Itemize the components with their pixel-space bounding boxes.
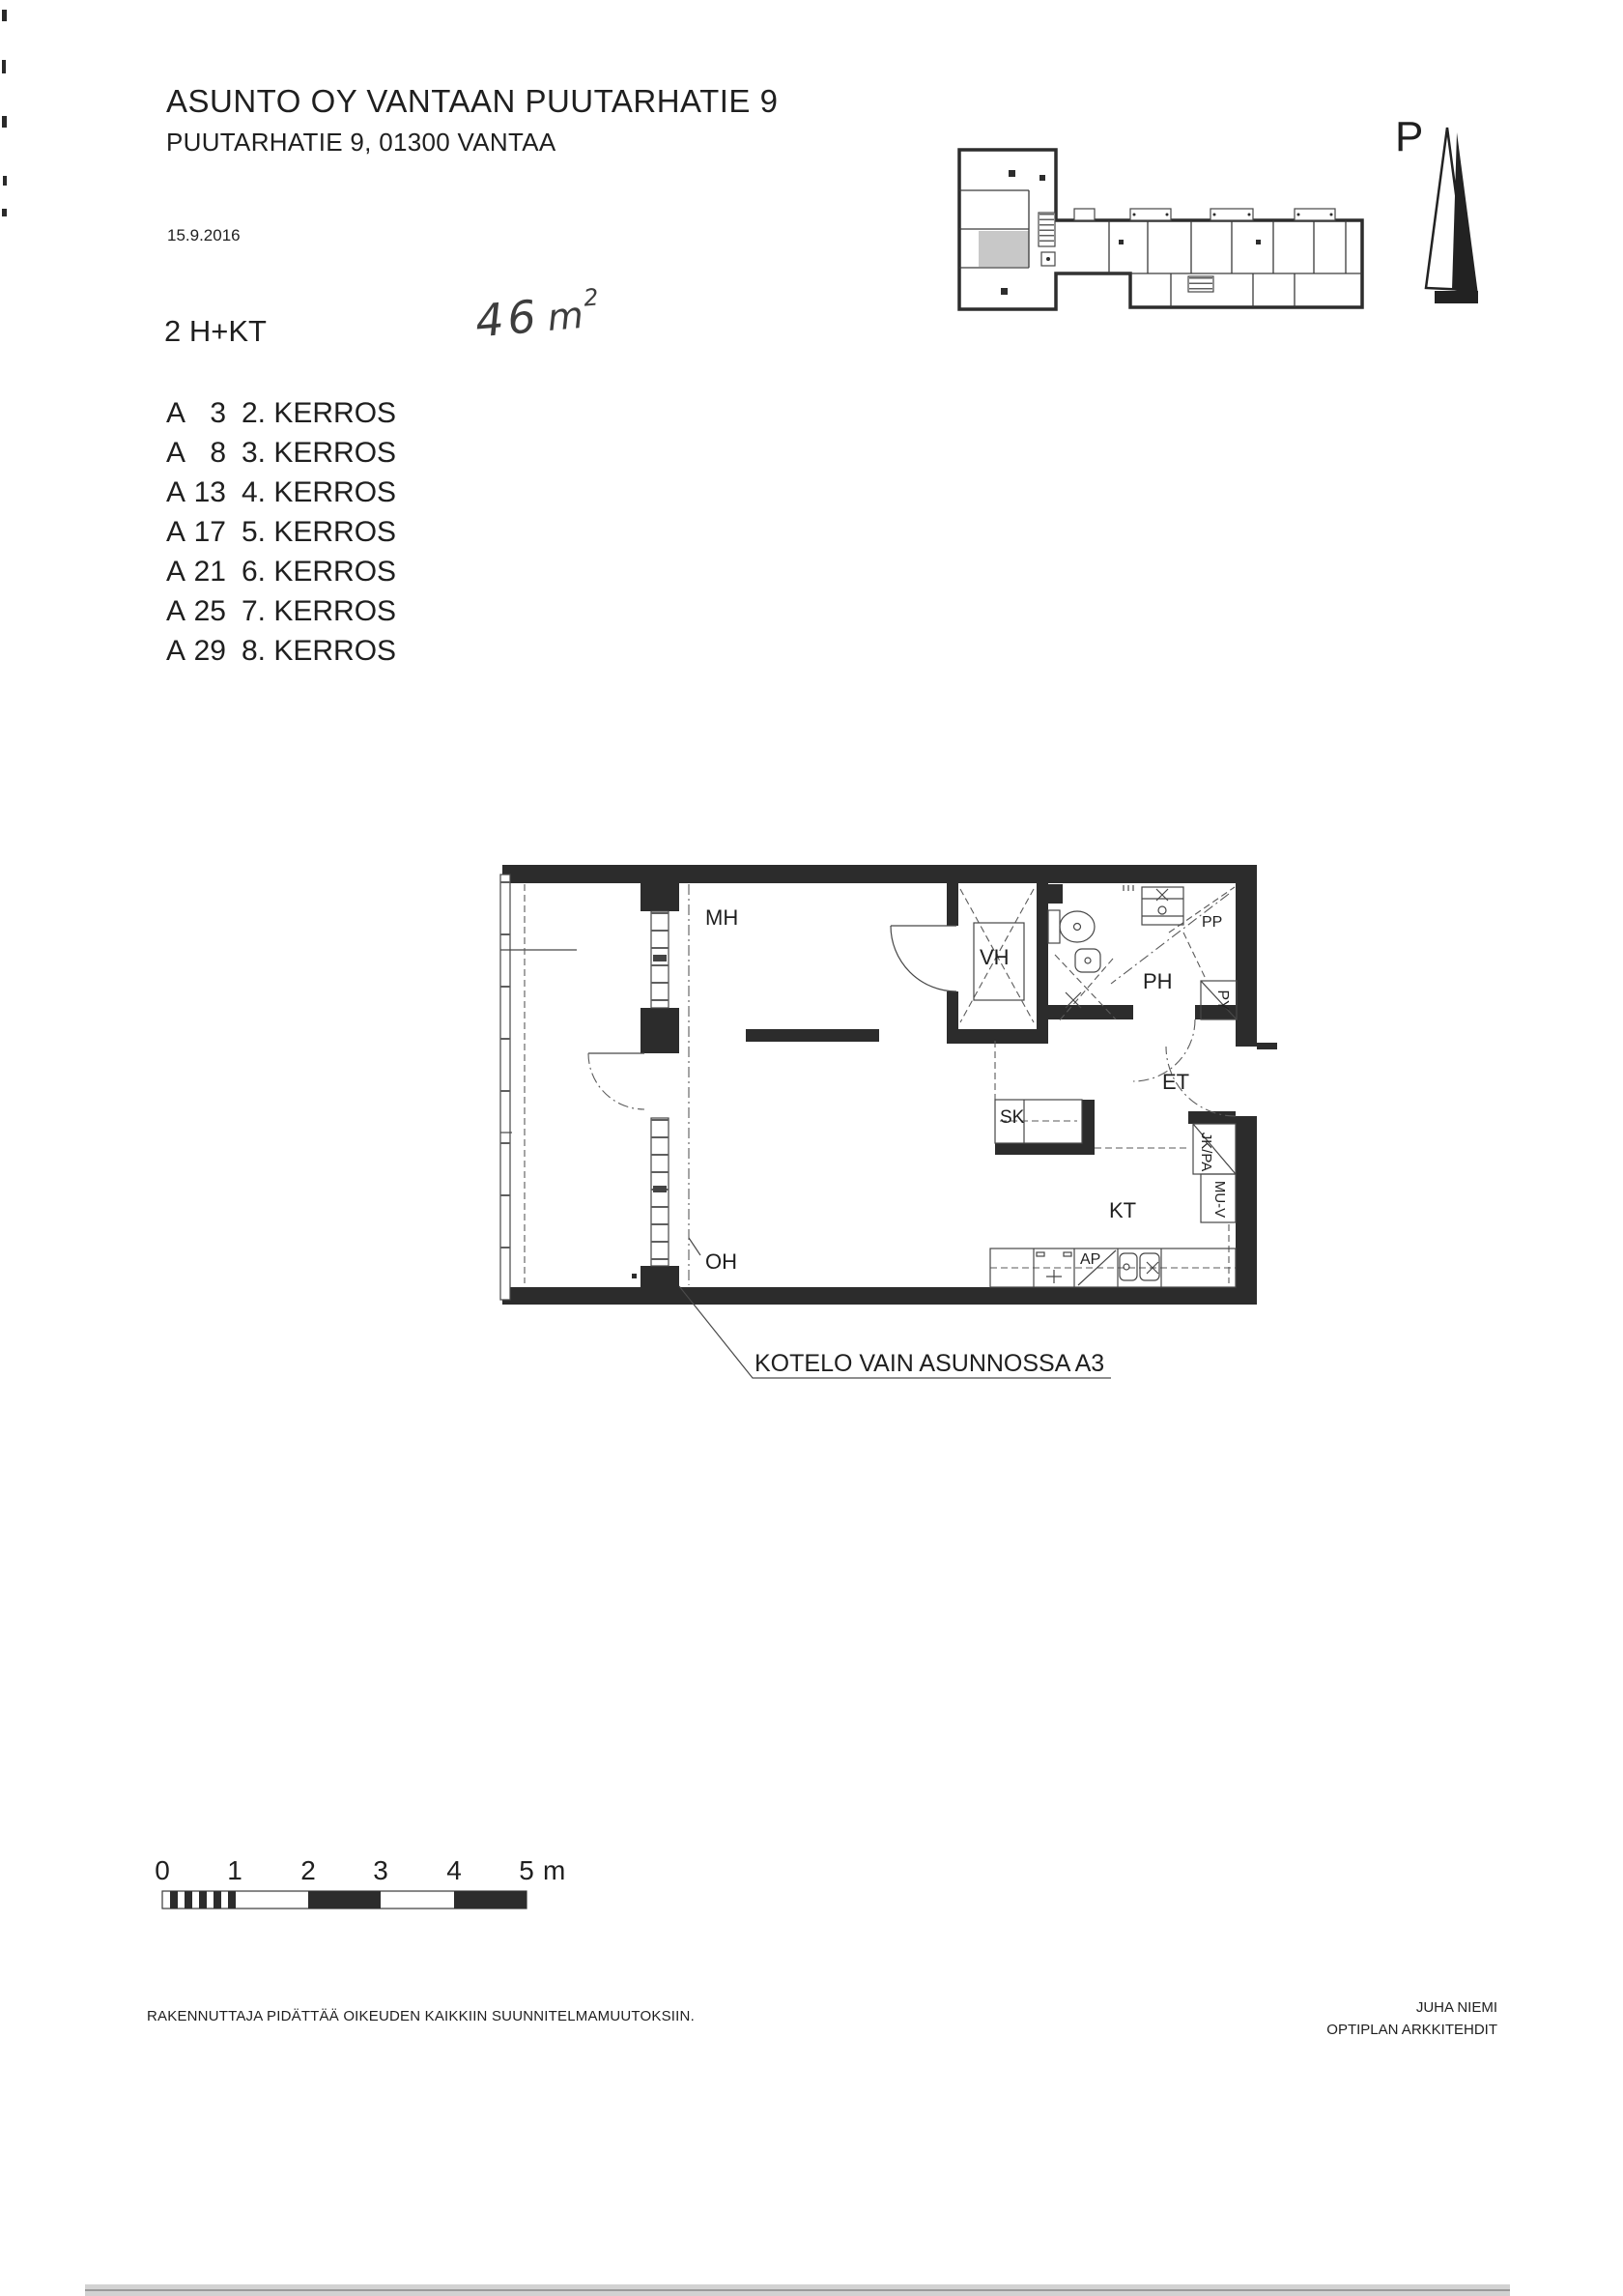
scale-tick: 3 <box>373 1855 388 1885</box>
room-labels: MH VH PH ET SK KT OH PP PY JK/PA MU-V AP… <box>705 905 1231 1377</box>
washbasin-icon <box>1075 949 1100 972</box>
scale-tick: 2 <box>300 1855 316 1885</box>
apt-floor: 5. KERROS <box>242 512 396 552</box>
apt-floor: 2. KERROS <box>242 393 396 433</box>
room-label-kt: KT <box>1109 1198 1136 1222</box>
area-unit: m <box>546 294 585 339</box>
apt-number: 13 <box>193 473 226 512</box>
scan-artifact <box>2 10 7 21</box>
apt-letter: A <box>166 433 193 473</box>
doors <box>588 926 1236 1116</box>
apartment-floor-plan: MH VH PH ET SK KT OH PP PY JK/PA MU-V AP… <box>483 841 1285 1421</box>
toilet-icon <box>1060 911 1095 942</box>
footer-disclaimer: RAKENNUTTAJA PIDÄTTÄÄ OIKEUDEN KAIKKIIN … <box>147 2008 695 2024</box>
document-date: 15.9.2016 <box>167 226 241 245</box>
room-label-sk: SK <box>1000 1107 1025 1128</box>
apt-number: 8 <box>193 433 226 473</box>
vh-door-swing <box>891 926 956 991</box>
scale-tick: 1 <box>227 1855 242 1885</box>
signature-company: OPTIPLAN ARKKITEHDIT <box>1326 2019 1497 2041</box>
oh-leader <box>689 1238 700 1255</box>
scanned-floor-plan-page: ASUNTO OY VANTAAN PUUTARHATIE 9 PUUTARHA… <box>0 0 1623 2296</box>
apt-number: 29 <box>193 631 226 671</box>
floor-list-row: A175. KERROS <box>166 512 396 552</box>
apt-floor: 4. KERROS <box>242 473 396 512</box>
key-plan-stairs <box>1039 213 1213 292</box>
area-value: 46 <box>473 290 542 348</box>
room-label-mh: MH <box>705 905 738 930</box>
floor-list-row: A257. KERROS <box>166 591 396 631</box>
apt-letter: A <box>166 512 193 552</box>
label-py: PY <box>1214 990 1231 1011</box>
area-superscript: 2 <box>583 283 600 311</box>
north-arrow-base <box>1435 291 1478 303</box>
north-arrow: P <box>1383 89 1490 316</box>
apt-floor: 3. KERROS <box>242 433 396 473</box>
room-label-oh: OH <box>705 1249 737 1274</box>
plan-walls <box>502 865 1277 1305</box>
apt-floor: 6. KERROS <box>242 552 396 591</box>
apt-letter: A <box>166 552 193 591</box>
scan-artifact <box>3 176 7 186</box>
scale-bar: 0 1 2 3 4 5 m <box>145 1851 570 1918</box>
scale-unit: m <box>543 1855 565 1885</box>
floor-list-row: A32. KERROS <box>166 393 396 433</box>
key-plan <box>956 143 1372 317</box>
apt-number: 21 <box>193 552 226 591</box>
balcony-glazing <box>500 875 577 1300</box>
key-plan-highlighted-unit <box>979 231 1029 267</box>
floor-list-row: A134. KERROS <box>166 473 396 512</box>
apt-letter: A <box>166 393 193 433</box>
apt-number: 25 <box>193 591 226 631</box>
floor-list-row: A216. KERROS <box>166 552 396 591</box>
dashed-lines <box>689 884 1236 1285</box>
scale-tick: 4 <box>446 1855 462 1885</box>
stove-icon <box>1037 1252 1044 1256</box>
floor-list-row: A83. KERROS <box>166 433 396 473</box>
north-label: P <box>1395 113 1423 160</box>
room-label-ph: PH <box>1143 969 1173 993</box>
label-ap: AP <box>1080 1251 1100 1268</box>
signature-name: JUHA NIEMI <box>1326 1996 1497 2019</box>
document-title: ASUNTO OY VANTAAN PUUTARHATIE 9 <box>166 83 778 120</box>
apt-number: 3 <box>193 393 226 433</box>
room-label-vh: VH <box>980 945 1010 969</box>
apt-letter: A <box>166 631 193 671</box>
scale-ruler <box>162 1891 527 1909</box>
scan-artifact <box>2 209 7 216</box>
label-pp: PP <box>1202 914 1222 931</box>
scale-tick: 5 <box>519 1855 534 1885</box>
apartment-type: 2 H+KT <box>164 314 267 349</box>
scan-artifact <box>2 60 6 73</box>
scan-artifact-bottom-line <box>85 2289 1510 2291</box>
floor-list-row: A298. KERROS <box>166 631 396 671</box>
label-jkpa: JK/PA <box>1198 1133 1214 1172</box>
closets-kitchen <box>974 923 1236 1287</box>
north-arrow-fill <box>1452 132 1478 295</box>
plan-note: KOTELO VAIN ASUNNOSSA A3 <box>755 1350 1104 1377</box>
scan-artifact <box>2 116 7 128</box>
balcony-door-swing <box>588 1053 644 1109</box>
scale-numbers: 0 1 2 3 4 5 m <box>155 1855 565 1885</box>
apt-letter: A <box>166 473 193 512</box>
key-plan-balconies <box>1074 209 1335 220</box>
label-muv: MU-V <box>1211 1181 1228 1218</box>
document-address: PUUTARHATIE 9, 01300 VANTAA <box>166 128 556 158</box>
toilet-tank-icon <box>1048 910 1060 943</box>
sink-basin-icon <box>1120 1253 1137 1280</box>
apt-floor: 8. KERROS <box>242 631 396 671</box>
window-wall <box>651 911 669 1266</box>
room-label-et: ET <box>1162 1070 1189 1094</box>
scale-tick: 0 <box>155 1855 170 1885</box>
handwritten-area: 46m2 <box>473 285 600 348</box>
apt-letter: A <box>166 591 193 631</box>
apt-number: 17 <box>193 512 226 552</box>
floor-list: A32. KERROS A83. KERROS A134. KERROS A17… <box>166 393 396 671</box>
footer-signature: JUHA NIEMI OPTIPLAN ARKKITEHDIT <box>1326 1996 1497 2041</box>
apt-floor: 7. KERROS <box>242 591 396 631</box>
